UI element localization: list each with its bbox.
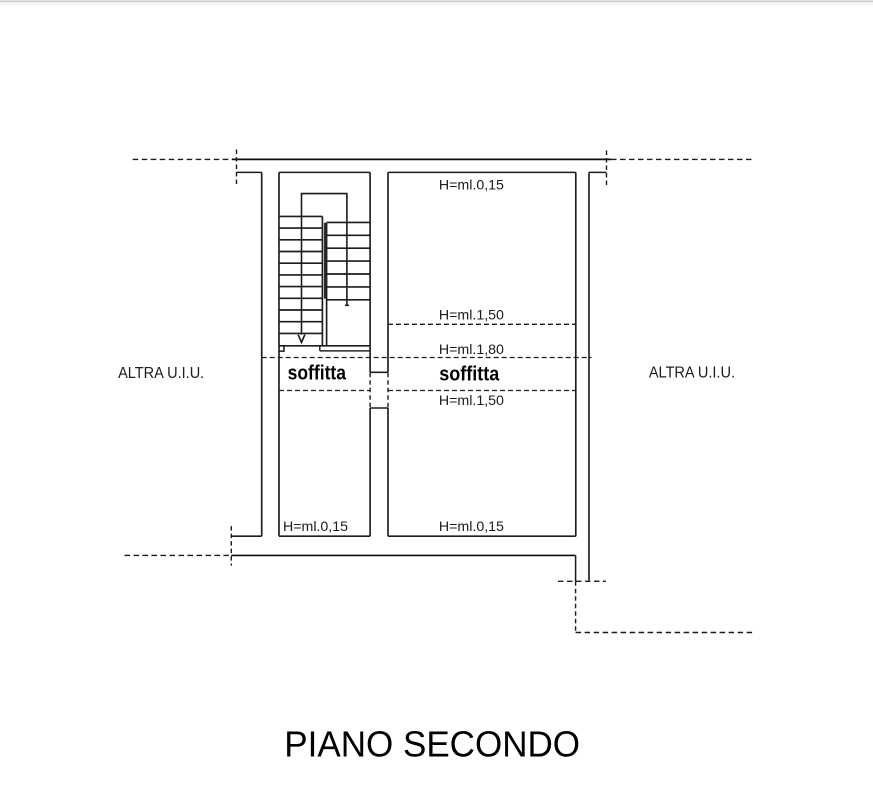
svg-text:soffitta: soffitta [439, 364, 499, 386]
svg-text:H=ml.0,15: H=ml.0,15 [439, 519, 504, 535]
svg-text:PIANO SECONDO: PIANO SECONDO [284, 724, 580, 765]
svg-text:H=ml.1,50: H=ml.1,50 [439, 308, 504, 324]
svg-text:H=ml.1,80: H=ml.1,80 [439, 342, 504, 358]
svg-text:H=ml.0,15: H=ml.0,15 [283, 519, 348, 535]
svg-text:soffitta: soffitta [288, 361, 347, 383]
svg-text:ALTRA U.I.U.: ALTRA U.I.U. [649, 364, 735, 382]
svg-text:ALTRA U.I.U.: ALTRA U.I.U. [118, 364, 204, 382]
svg-text:H=ml.0,15: H=ml.0,15 [439, 178, 504, 194]
svg-text:H=ml.1,50: H=ml.1,50 [439, 393, 504, 409]
